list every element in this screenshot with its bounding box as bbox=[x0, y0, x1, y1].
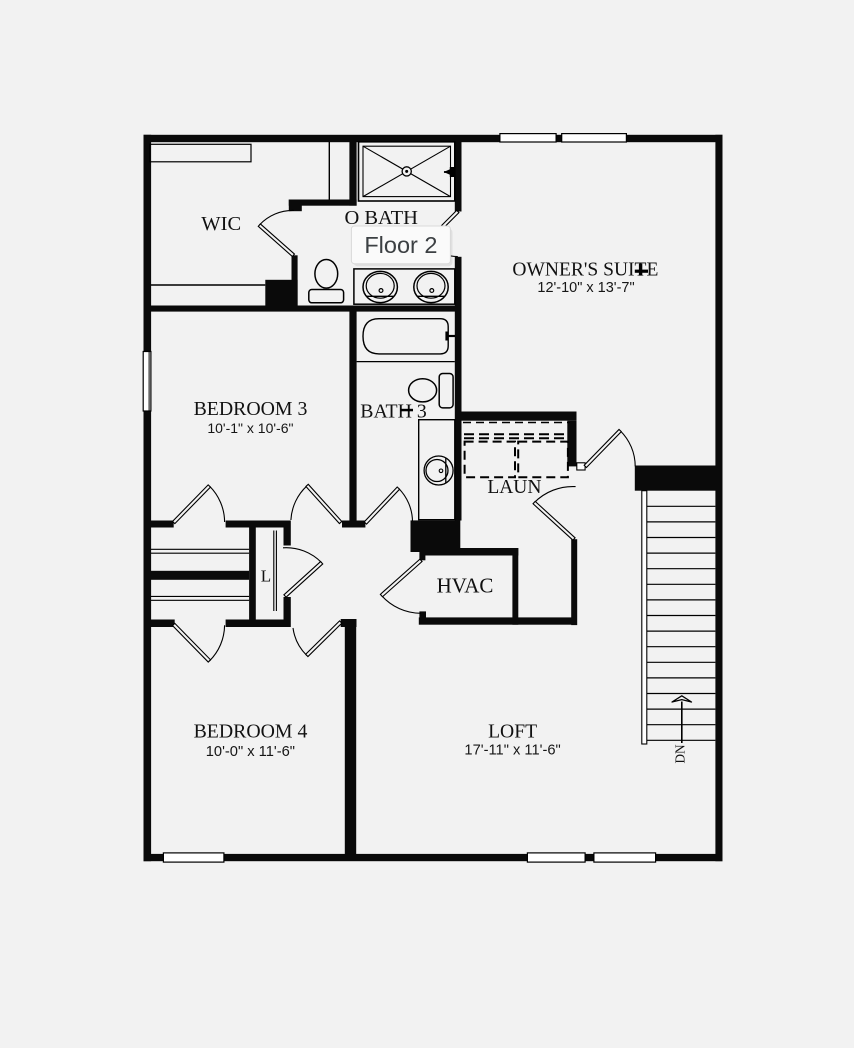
svg-text:Floor 2: Floor 2 bbox=[364, 232, 437, 258]
svg-text:BATH 3: BATH 3 bbox=[360, 401, 427, 423]
svg-text:DN: DN bbox=[673, 744, 688, 764]
svg-text:LAUN: LAUN bbox=[487, 477, 541, 498]
svg-text:10'-1" x 10'-6": 10'-1" x 10'-6" bbox=[207, 420, 293, 436]
svg-text:BEDROOM 4: BEDROOM 4 bbox=[194, 721, 308, 743]
svg-text:WIC: WIC bbox=[201, 213, 241, 235]
svg-text:12'-10" x 13'-7": 12'-10" x 13'-7" bbox=[537, 280, 634, 296]
svg-text:BEDROOM 3: BEDROOM 3 bbox=[194, 398, 308, 420]
svg-text:17'-11" x 11'-6": 17'-11" x 11'-6" bbox=[464, 742, 560, 758]
svg-text:LOFT: LOFT bbox=[488, 722, 537, 743]
svg-text:10'-0" x 11'-6": 10'-0" x 11'-6" bbox=[206, 744, 295, 760]
svg-text:HVAC: HVAC bbox=[437, 573, 494, 597]
svg-text:L: L bbox=[261, 567, 271, 586]
